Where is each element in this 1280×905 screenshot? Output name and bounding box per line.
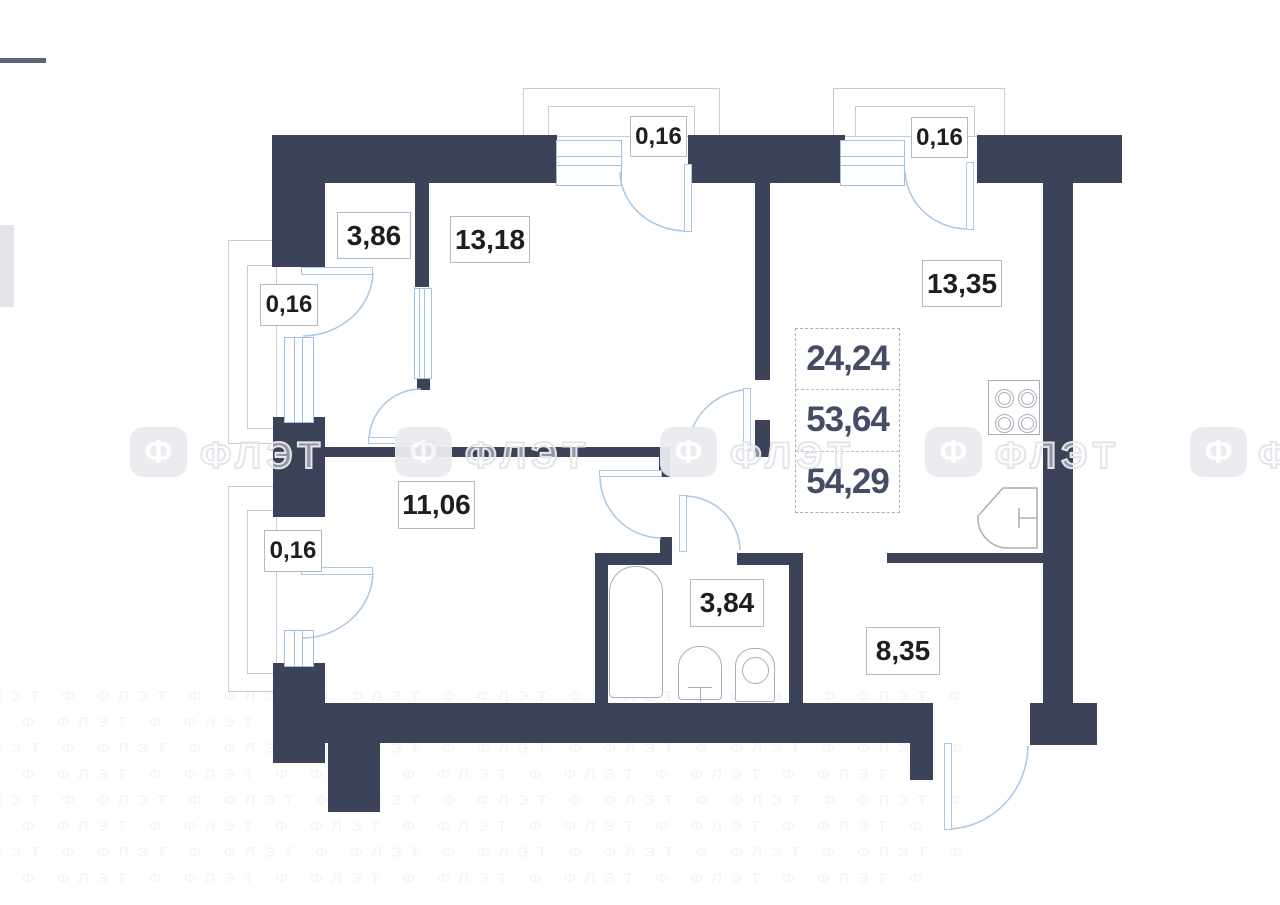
flat-watermark-text: ФЛЭТ <box>730 435 855 475</box>
flat-logo-icon: Ф <box>925 427 982 477</box>
door-leaf <box>679 495 687 552</box>
door-leaf <box>599 470 662 477</box>
balcony-area-label-left-upper: 0,16 <box>260 284 318 326</box>
floor-plan: ФЛЭТ Ф ФЛЭТ Ф ФЛЭТ Ф ФЛЭТ Ф ФЛЭТ Ф ФЛЭТ … <box>0 0 1280 905</box>
summary-value: 24,24 <box>796 329 899 390</box>
room-area-label-3-86: 3,86 <box>337 212 411 259</box>
door-leaf <box>301 267 373 275</box>
entrance-door-leaf <box>944 743 952 830</box>
flat-logo-icon: Ф <box>1190 427 1247 477</box>
flat-watermark-text: ФЛЭТ <box>1258 435 1280 475</box>
flat-watermark-text: ФЛЭТ <box>995 435 1120 475</box>
room-area-label-13-35: 13,35 <box>922 260 1002 307</box>
door-leaf <box>684 164 692 232</box>
door-leaf <box>966 162 974 230</box>
room-area-label-13-18: 13,18 <box>450 216 530 263</box>
balcony-area-label-left-lower: 0,16 <box>264 530 322 572</box>
balcony-area-label-top-center: 0,16 <box>630 116 687 157</box>
balcony-area-label-top-right: 0,16 <box>911 117 968 158</box>
area-summary-box: 24,24 53,64 54,29 <box>795 328 900 513</box>
room-area-label-3-84: 3,84 <box>690 579 764 627</box>
flat-logo-icon: Ф <box>130 427 187 477</box>
flat-watermark-text: ФЛЭТ <box>465 435 590 475</box>
room-area-label-8-35: 8,35 <box>866 627 940 675</box>
flat-logo-icon: Ф <box>660 427 717 477</box>
flat-watermark-text: ФЛЭТ <box>200 435 325 475</box>
room-area-label-11-06: 11,06 <box>398 481 475 529</box>
flat-logo-icon: Ф <box>395 427 452 477</box>
